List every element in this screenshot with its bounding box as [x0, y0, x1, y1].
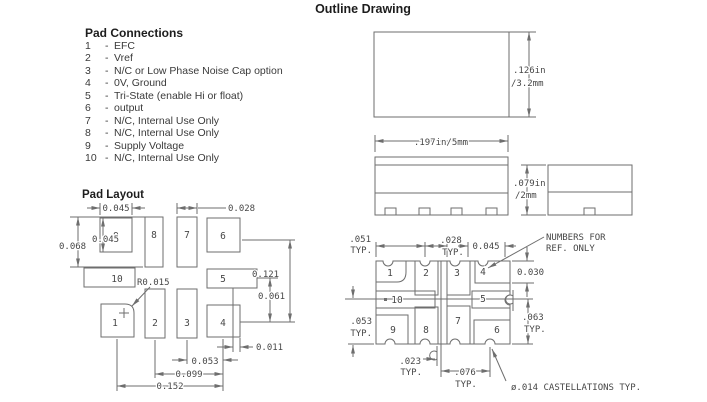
dim-row-5-to-4: 0.061 [258, 292, 285, 302]
dim-corner-radius: R0.015 [137, 278, 170, 288]
pad-connections-list: 1-EFC 2-Vref 3-N/C or Low Phase Noise Ca… [85, 40, 283, 165]
bottom-pad-10: 10 [391, 295, 403, 306]
numbers-note-line1: NUMBERS FOR [546, 233, 606, 243]
castellation-tab [385, 208, 396, 215]
castellations-note: ø.014 CASTELLATIONS TYP. [511, 383, 641, 393]
separator: - [105, 102, 114, 114]
layout-pad-3: 3 [184, 318, 190, 329]
dim-063-typ: TYP. [524, 325, 546, 335]
pin1-cross-mark [119, 308, 129, 318]
pad-connection-row: 3-N/C or Low Phase Noise Cap option [85, 65, 283, 77]
pad-desc: Tri-State (enable Hi or float) [114, 90, 243, 102]
bottom-pad-9: 9 [390, 325, 396, 336]
pad-desc: EFC [114, 40, 135, 52]
outline-drawing-page: .126in /3.2mm .197in/5mm .079in /2mm [0, 0, 707, 402]
layout-pad-7: 7 [184, 230, 190, 241]
separator: - [105, 127, 114, 139]
dim-030: 0.030 [517, 268, 544, 278]
pad-num: 3 [85, 65, 105, 77]
pad-num: 2 [85, 52, 105, 64]
pad-connection-row: 6-output [85, 102, 283, 114]
bottom-pad-3: 3 [454, 268, 460, 279]
pad-connection-row: 1-EFC [85, 40, 283, 52]
pad-connection-row: 2-Vref [85, 52, 283, 64]
pad-desc: N/C, Internal Use Only [114, 115, 219, 127]
dim-028-typ: TYP. [442, 248, 464, 258]
dim-051-typ: TYP. [350, 246, 372, 256]
dim-023: .023 [399, 357, 421, 367]
pad-num: 6 [85, 102, 105, 114]
pad-num: 4 [85, 77, 105, 89]
pad-layout-drawing: 9 8 7 6 10 5 1 2 3 4 0.045 0.028 0.068 0… [59, 203, 295, 392]
bottom-pad-5: 5 [480, 294, 486, 305]
page-title: Outline Drawing [233, 2, 493, 16]
dim-pitch-1-4: 0.152 [156, 382, 183, 392]
pad-connection-row: 5-Tri-State (enable Hi or float) [85, 90, 283, 102]
dim-pad9-width: 0.045 [102, 204, 129, 214]
separator: - [105, 52, 114, 64]
layout-pad-10: 10 [111, 274, 123, 285]
top-view: .126in /3.2mm [374, 32, 546, 117]
numbers-note-line2: REF. ONLY [546, 244, 595, 254]
pad-desc: 0V, Ground [114, 77, 167, 89]
pad-num: 7 [85, 115, 105, 127]
bottom-pad-1: 1 [387, 268, 393, 279]
separator: - [105, 65, 114, 77]
pad-desc: N/C, Internal Use Only [114, 127, 219, 139]
layout-pad-4: 4 [220, 318, 226, 329]
separator: - [105, 140, 114, 152]
dim-023-typ: TYP. [400, 368, 422, 378]
dim-pad9-height: 0.045 [92, 235, 119, 245]
dim-pad7-width: 0.028 [228, 204, 255, 214]
pad-num: 9 [85, 140, 105, 152]
dim-pitch-2-4: 0.099 [175, 370, 202, 380]
pad-num: 1 [85, 40, 105, 52]
dim-051: .051 [349, 235, 371, 245]
end-view-height-dim-in: .079in [513, 179, 546, 189]
pad-connection-row: 4-0V, Ground [85, 77, 283, 89]
separator: - [105, 152, 114, 164]
top-view-height-dim-in: .126in [513, 66, 546, 76]
centerline-symbol [430, 346, 437, 366]
pad-connection-row: 8-N/C, Internal Use Only [85, 127, 283, 139]
bottom-pad-7: 7 [455, 316, 461, 327]
end-view: .079in /2mm [513, 165, 632, 215]
separator: - [105, 115, 114, 127]
castellation-tab [584, 208, 595, 215]
pad-connections-heading: Pad Connections [85, 26, 183, 40]
separator: - [105, 90, 114, 102]
layout-pad-2: 2 [152, 318, 158, 329]
separator: - [105, 40, 114, 52]
dim-053: .053 [350, 317, 372, 327]
pad-layout-heading: Pad Layout [82, 189, 144, 201]
pad-desc: Vref [114, 52, 133, 64]
origin-dot [384, 298, 387, 301]
top-view-height-dim-mm: /3.2mm [511, 79, 544, 89]
dim-028: .028 [440, 236, 462, 246]
castellation-tab [486, 208, 497, 215]
pad-desc: output [114, 102, 143, 114]
bottom-view: 1 2 3 4 10 5 9 8 7 6 .051 TYP. .028 TYP.… [345, 233, 641, 393]
pad-num: 10 [85, 152, 105, 164]
dim-063: .063 [522, 313, 544, 323]
bottom-pad-4: 4 [480, 267, 486, 278]
layout-pad-8: 8 [151, 230, 157, 241]
dim-pitch-3-4: 0.053 [191, 357, 218, 367]
pad-desc: N/C, Internal Use Only [114, 152, 219, 164]
layout-pad-6: 6 [220, 231, 226, 242]
bottom-pad-2: 2 [423, 268, 429, 279]
layout-pad-5: 5 [220, 274, 226, 285]
pad-connection-row: 7-N/C, Internal Use Only [85, 115, 283, 127]
layout-pad-1: 1 [112, 318, 118, 329]
pad-desc: Supply Voltage [114, 140, 184, 152]
pad-connection-row: 9-Supply Voltage [85, 140, 283, 152]
castellation-tab [451, 208, 462, 215]
pad-num: 8 [85, 127, 105, 139]
dim-053-typ: TYP. [350, 329, 372, 339]
dim-pad-offset: 0.011 [256, 343, 283, 353]
bottom-pad-6: 6 [494, 325, 500, 336]
bottom-pad-8: 8 [423, 325, 429, 336]
side-view: .197in/5mm [375, 135, 508, 215]
dim-045: 0.045 [472, 242, 499, 252]
castellation-tab [419, 208, 430, 215]
dim-076: .076 [454, 368, 476, 378]
pad-num: 5 [85, 90, 105, 102]
dim-076-typ: TYP. [455, 380, 477, 390]
end-view-height-dim-mm: /2mm [515, 191, 537, 201]
separator: - [105, 77, 114, 89]
pad-connection-row: 10-N/C, Internal Use Only [85, 152, 283, 164]
pad-desc: N/C or Low Phase Noise Cap option [114, 65, 283, 77]
side-view-width-dim: .197in/5mm [414, 138, 468, 148]
dim-col-height: 0.068 [59, 242, 86, 252]
